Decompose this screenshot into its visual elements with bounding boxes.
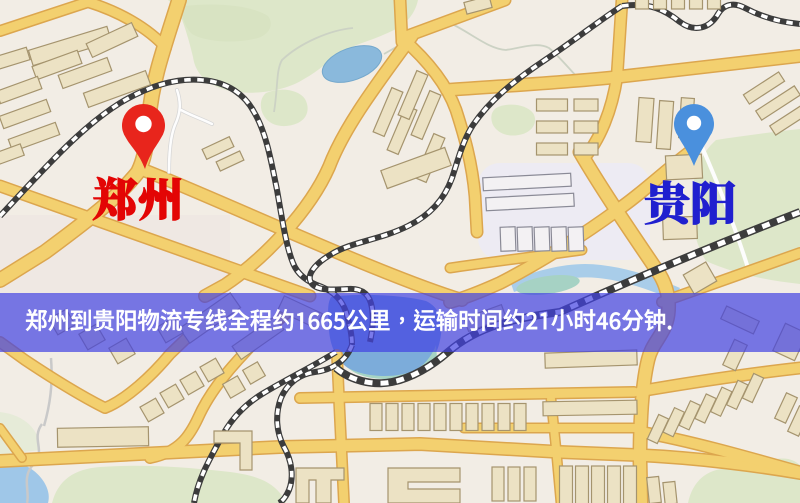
svg-text:郑州: 郑州 — [92, 171, 184, 226]
svg-text:郑州到贵阳物流专线全程约1665公里，运输时间约21小时46: 郑州到贵阳物流专线全程约1665公里，运输时间约21小时46分钟. — [25, 306, 673, 334]
svg-text:贵阳: 贵阳 — [644, 175, 736, 230]
